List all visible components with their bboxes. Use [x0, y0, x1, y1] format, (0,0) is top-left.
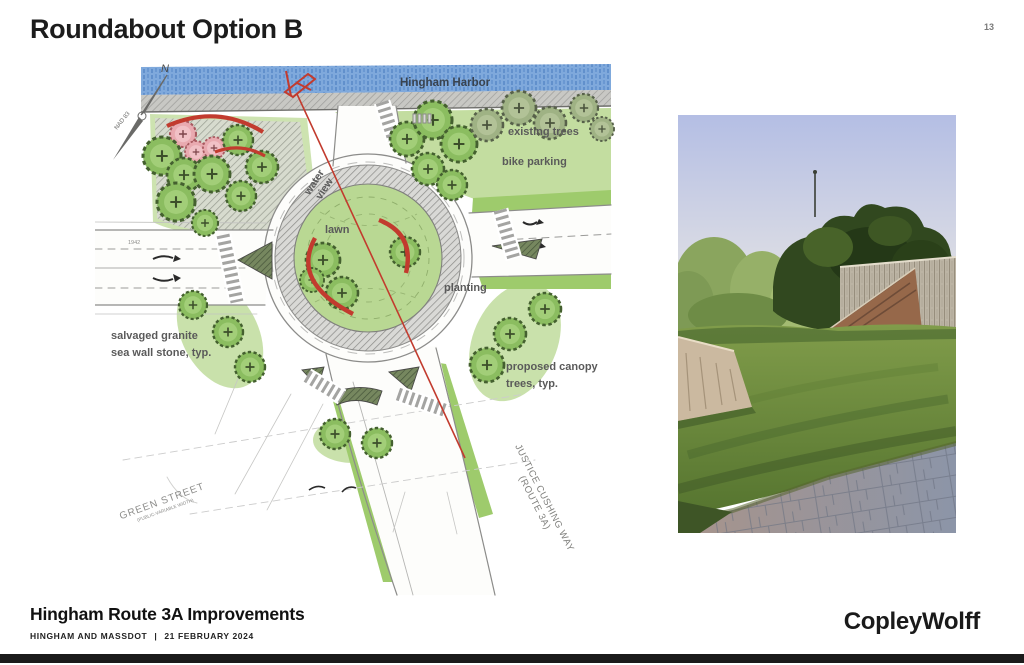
footer: Hingham Route 3A Improvements HINGHAM AN…: [30, 604, 305, 641]
site-plan-drawing: N NAD 83 Hingham Harbor existing trees b…: [95, 62, 615, 602]
photo-stone-wall-right: [828, 257, 956, 331]
year-mark: 1942: [128, 240, 140, 246]
footer-agency: HINGHAM AND MASSDOT: [30, 631, 147, 641]
firm-logo: CopleyWolff: [844, 608, 980, 636]
granite-label-2: sea wall stone, typ.: [111, 347, 211, 359]
precedent-photo: [678, 115, 956, 533]
bike-parking-label: bike parking: [502, 156, 567, 168]
canopy-label-1: proposed canopy: [506, 361, 599, 373]
footer-divider: |: [154, 631, 157, 641]
canopy-label-2: trees, typ.: [506, 378, 558, 390]
roundabout-center: [275, 165, 461, 351]
justice-cushing-label: JUSTICE CUSHING WAY (ROUTE 3A): [503, 442, 577, 558]
svg-text:NAD 83: NAD 83: [114, 110, 132, 131]
svg-text:JUSTICE CUSHING WAY: JUSTICE CUSHING WAY: [512, 442, 576, 553]
harbor-label: Hingham Harbor: [400, 77, 491, 89]
existing-trees-label: existing trees: [508, 126, 579, 138]
lawn-label: lawn: [325, 224, 350, 236]
page-number: 13: [984, 22, 994, 32]
site-plan-figure: N NAD 83 Hingham Harbor existing trees b…: [95, 62, 615, 602]
granite-label-1: salvaged granite: [111, 330, 198, 342]
footer-project-title: Hingham Route 3A Improvements: [30, 604, 305, 625]
planting-label: planting: [444, 282, 487, 294]
green-street-label: GREEN STREET (PUBLIC-VARIABLE WIDTH): [118, 481, 208, 528]
footer-client-line: HINGHAM AND MASSDOT | 21 FEBRUARY 2024: [30, 631, 305, 641]
footer-bar: [0, 654, 1024, 663]
svg-text:N: N: [161, 63, 169, 75]
footer-date: 21 FEBRUARY 2024: [164, 631, 253, 641]
page-title: Roundabout Option B: [30, 14, 303, 45]
